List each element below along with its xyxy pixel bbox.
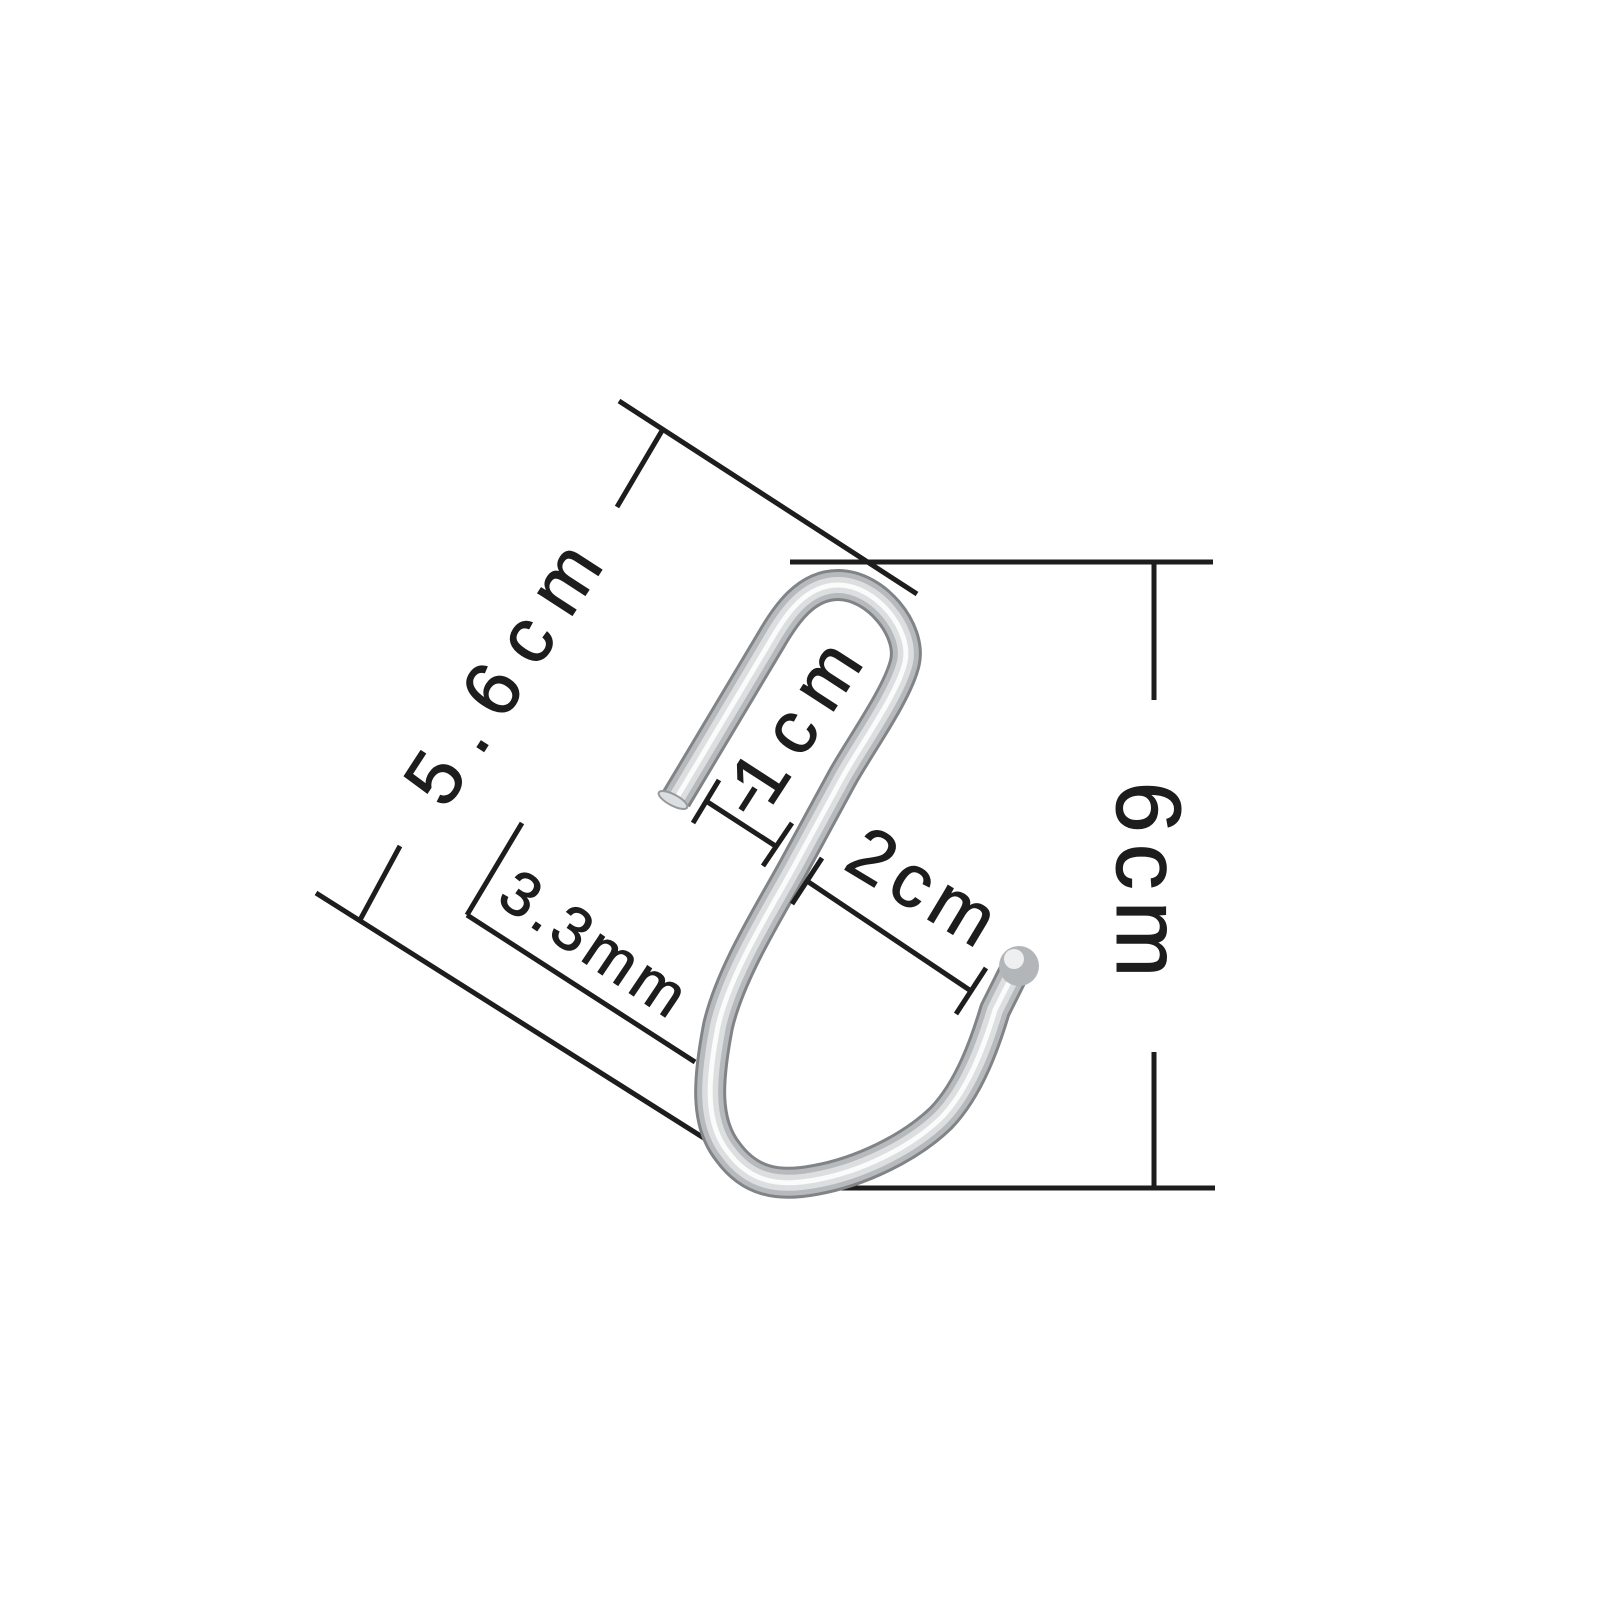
svg-text:6cm: 6cm: [1097, 782, 1199, 989]
